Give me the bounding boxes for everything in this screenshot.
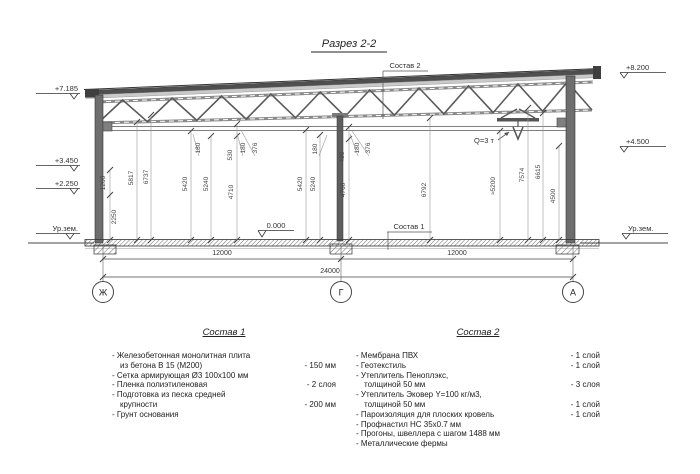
list-item: - Подготовка из песка среднейкрупности -… xyxy=(112,390,336,410)
axis-bubble-label: Г xyxy=(339,288,344,298)
dim-label: 4710 xyxy=(228,184,235,199)
elevation-tick-icon xyxy=(66,234,74,240)
item-value: - 1 слой xyxy=(565,410,600,420)
list-item: - Пароизоляция для плоских кровель - 1 с… xyxy=(356,410,600,420)
elevation-marks-right: +8.200 +4.500 Ур.зем. xyxy=(620,63,668,239)
dim-label: 530 xyxy=(227,149,234,160)
item-text: толщиной 50 мм xyxy=(356,400,482,410)
callout-floor-label: Состав 1 xyxy=(393,222,424,231)
item-value: - 1 слой xyxy=(565,351,600,361)
floor-elevation-label: 0.000 xyxy=(267,221,286,230)
vertical-dim-ticks xyxy=(107,105,562,243)
dim-total-label: 24000 xyxy=(320,268,340,275)
item-text: из бетона В 15 (М200) xyxy=(112,361,250,371)
middle-column xyxy=(337,116,343,241)
dim-label: 5817 xyxy=(128,170,135,185)
dim-label: 180 xyxy=(354,142,361,153)
item-text: - Прогоны, швеллера с шагом 1488 мм xyxy=(356,429,500,439)
elevation-label: +3.450 xyxy=(55,156,78,165)
list-item: - Утеплитель Пеноплэкс,толщиной 50 мм - … xyxy=(356,371,600,391)
item-text: - Грунт основания xyxy=(112,410,179,420)
list-item: - Сетка армирующая Ø3 100x100 мм xyxy=(112,371,336,381)
elevation-tick-icon xyxy=(620,147,628,153)
vertical-dim-lines xyxy=(110,108,559,240)
right-wall xyxy=(566,76,575,243)
item-value: - 2 слоя xyxy=(301,380,336,390)
dim-label: 6737 xyxy=(143,169,150,184)
item-value: - 1 слой xyxy=(565,400,600,410)
dim-label: 5420 xyxy=(297,176,304,191)
item-value: - 150 мм xyxy=(299,361,336,371)
dim-label: 1200 xyxy=(100,175,107,190)
composition-2-title-text: Состав 2 xyxy=(457,327,500,338)
elevation-label: +8.200 xyxy=(626,63,649,72)
dim-label: 180 xyxy=(195,142,202,153)
composition-1-list: Состав 1 - Железобетонная монолитная пли… xyxy=(112,327,336,420)
item-text: толщиной 50 мм xyxy=(356,380,448,390)
item-value: - 200 мм xyxy=(299,400,336,410)
item-text: крупности xyxy=(112,400,225,410)
elevation-label: +2.250 xyxy=(55,179,78,188)
item-text: - Пленка полиэтиленовая xyxy=(112,380,207,390)
roof-assembly xyxy=(84,66,601,99)
item-text: - Утеплитель Эковер Y=100 кг/м3, xyxy=(356,390,482,400)
drawing-page: Разрез 2-2 Q=3 т xyxy=(0,0,700,474)
elevation-tick-icon xyxy=(70,166,78,172)
dim-label: 5240 xyxy=(310,176,317,191)
dim-label: 6792 xyxy=(421,182,428,197)
elevation-marks-left: +7.185 +3.450 +2.250 Ур.зем. xyxy=(36,84,80,239)
dim-label: 6615 xyxy=(535,164,542,179)
composition-2-list: Состав 2 - Мембрана ПВХ - 1 слой - Геоте… xyxy=(356,327,600,449)
dim-label: 7574 xyxy=(519,167,526,182)
dim-label: 5240 xyxy=(203,176,210,191)
elevation-tick-icon xyxy=(620,73,628,79)
item-text: - Железобетонная монолитная плита xyxy=(112,351,250,361)
callout-roof-label: Состав 2 xyxy=(389,61,420,70)
foundation-left xyxy=(94,245,116,254)
item-value: - 1 слой xyxy=(565,361,600,371)
dim-label: 4760 xyxy=(340,182,347,197)
vertical-dim-labels: 1200 2250 5817 6737 180 5420 5240 530 47… xyxy=(100,142,557,224)
dim-span-label: 12000 xyxy=(447,250,467,257)
list-item: - Профнастил НС 35x0.7 мм xyxy=(356,420,600,430)
elevation-tick-icon xyxy=(70,94,78,100)
elevation-tick-icon xyxy=(258,231,266,238)
composition-2-title: Состав 2 xyxy=(356,327,600,338)
list-item: - Мембрана ПВХ - 1 слой xyxy=(356,351,600,361)
item-text: - Профнастил НС 35x0.7 мм xyxy=(356,420,461,430)
elevation-tick-icon xyxy=(622,234,630,240)
floor-elevation-mark: 0.000 xyxy=(258,221,294,237)
dim-label: 4500 xyxy=(550,188,557,203)
item-value: - 3 слоя xyxy=(565,380,600,390)
item-text: - Пароизоляция для плоских кровель xyxy=(356,410,494,420)
elevation-tick-icon xyxy=(70,189,78,195)
composition-1-title: Состав 1 xyxy=(112,327,336,338)
grid-axes: Ж Г А xyxy=(93,282,584,303)
list-item: - Пленка полиэтиленовая - 2 слоя xyxy=(112,380,336,390)
dim-label: 376 xyxy=(252,142,259,153)
crane-hook-icon xyxy=(513,127,523,139)
list-item: - Грунт основания xyxy=(112,410,336,420)
list-item: - Металлические фермы xyxy=(356,439,600,449)
composition-1-title-text: Состав 1 xyxy=(203,327,246,338)
dim-label: 180 xyxy=(312,143,319,154)
list-item: - Железобетонная монолитная плитаиз бето… xyxy=(112,351,336,371)
dim-label: 480 xyxy=(339,151,346,162)
item-text: - Металлические фермы xyxy=(356,439,448,449)
item-text: - Подготовка из песка средней xyxy=(112,390,225,400)
elevation-label: +4.500 xyxy=(626,137,649,146)
ground-level-label: Ур.зем. xyxy=(628,224,653,233)
drawing-title: Разрез 2-2 xyxy=(322,38,377,50)
axis-bubble-label: А xyxy=(570,288,576,298)
elevation-label: +7.185 xyxy=(55,84,78,93)
item-text: - Сетка армирующая Ø3 100x100 мм xyxy=(112,371,248,381)
item-text: - Геотекстиль xyxy=(356,361,406,371)
list-item: - Утеплитель Эковер Y=100 кг/м3,толщиной… xyxy=(356,390,600,410)
item-text: - Утеплитель Пеноплэкс, xyxy=(356,371,448,381)
dim-label: 376 xyxy=(365,142,372,153)
item-text: - Мембрана ПВХ xyxy=(356,351,418,361)
foundation-right xyxy=(556,245,579,254)
dim-label: 5420 xyxy=(182,176,189,191)
dim-span-label: 12000 xyxy=(212,250,232,257)
dim-label: 2250 xyxy=(111,209,118,224)
ground-level-label: Ур.зем. xyxy=(53,224,78,233)
list-item: - Геотекстиль - 1 слой xyxy=(356,361,600,371)
axis-bubble-label: Ж xyxy=(99,288,108,298)
dim-label: ≈5200 xyxy=(490,177,497,195)
roof-right-cap xyxy=(593,66,601,79)
left-wall xyxy=(95,95,103,243)
list-item: - Прогоны, швеллера с шагом 1488 мм xyxy=(356,429,600,439)
crane-capacity-label: Q=3 т xyxy=(474,136,494,145)
dim-label: 180 xyxy=(240,142,247,153)
